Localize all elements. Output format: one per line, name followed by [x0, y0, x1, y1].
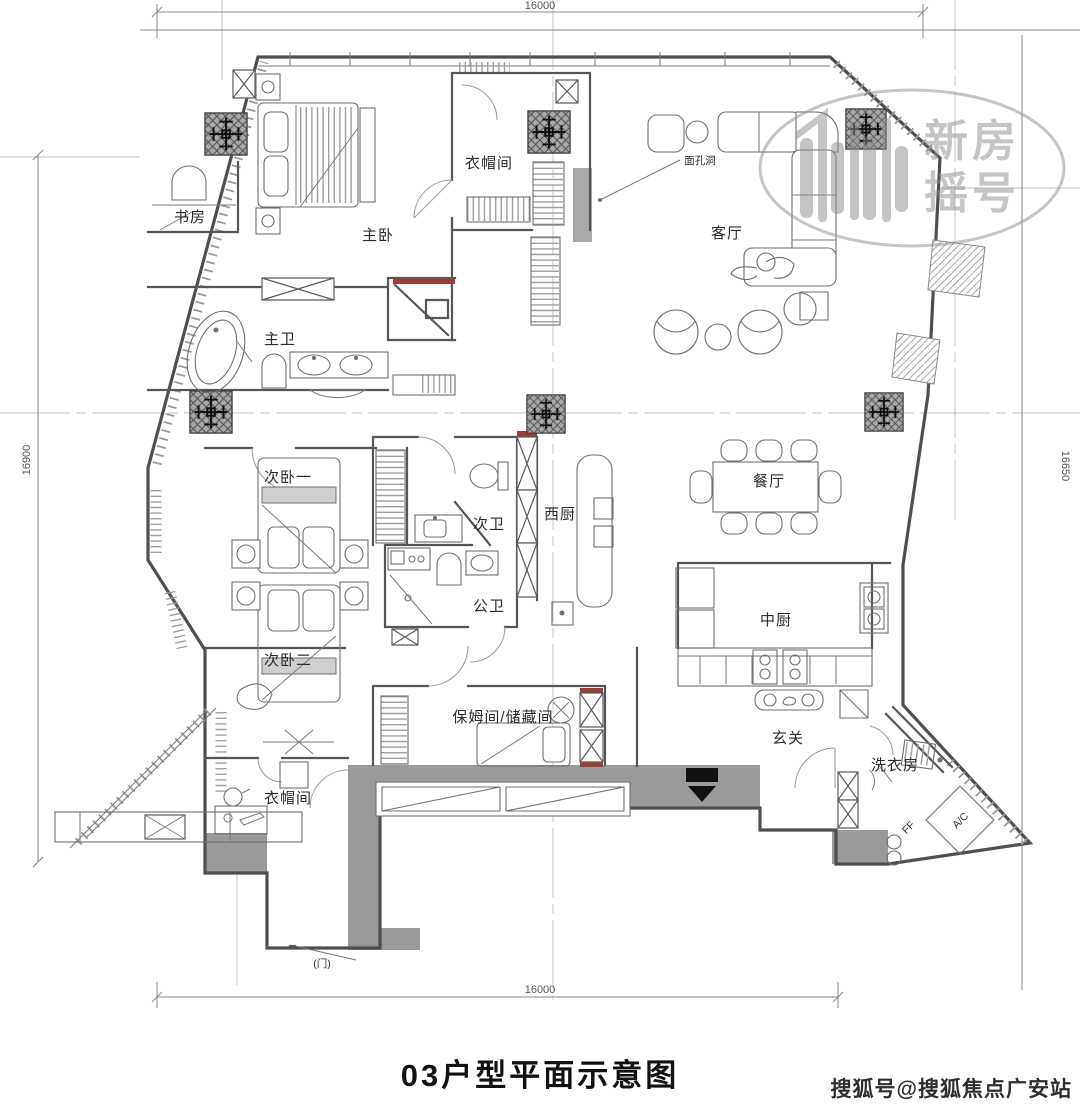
armchairs — [654, 310, 782, 354]
logo-text-line1: 新房 — [924, 117, 1020, 166]
dim-bottom: 16000 — [525, 984, 556, 996]
floorplan-page: 16000 16900 16650 16000 — [0, 0, 1080, 1118]
west-kitchen-counter — [552, 455, 613, 625]
footer-watermark: 搜狐号@搜狐焦点广安站 — [831, 1077, 1072, 1101]
room-label-dining: 餐厅 — [753, 473, 785, 490]
ff-annotation: FF — [900, 819, 918, 837]
room-label-foyer: 玄关 — [772, 730, 804, 747]
room-label-master-closet: 衣帽间 — [465, 155, 513, 172]
room-label-maid-storage: 保姆间/储藏间 — [452, 709, 553, 726]
room-label-laundry: 洗衣房 — [871, 757, 919, 774]
dim-left: 16900 — [21, 445, 33, 476]
plan-title: 03户型平面示意图 — [401, 1058, 679, 1093]
logo-building-icon — [796, 108, 908, 222]
room-label-bath-2: 次卫 — [473, 516, 505, 533]
room-label-entry-closet: 衣帽间 — [264, 790, 312, 807]
elevator-bank — [376, 782, 630, 816]
room-label-study: 书房 — [174, 209, 206, 226]
dim-right: 16650 — [1059, 451, 1071, 482]
room-label-living-room: 客厅 — [711, 225, 743, 242]
room-label-public-bath: 公卫 — [473, 598, 505, 615]
room-label-master-bath: 主卫 — [264, 331, 296, 348]
room-label-bedroom-3: 次卧二 — [264, 652, 312, 669]
ac-annotation: A/C — [950, 810, 971, 831]
room-label-west-kitchen: 西厨 — [544, 506, 576, 523]
room-label-master-bedroom: 主卧 — [362, 227, 394, 244]
floorplan-drawing: 16000 16900 16650 16000 — [0, 0, 1080, 1118]
chinese-kitchen-counters — [676, 568, 888, 718]
logo-text-line2: 摇号 — [924, 169, 1020, 218]
hole-annotation: 面孔洞 — [684, 154, 716, 167]
master-bed — [256, 74, 375, 234]
logo-watermark: 新房 摇号 — [760, 90, 1064, 246]
maid-bed — [477, 697, 574, 766]
dim-top: 16000 — [525, 0, 556, 12]
bed-3 — [232, 582, 368, 709]
door-note: (门) — [313, 957, 331, 970]
room-label-chinese-kitchen: 中厨 — [760, 612, 792, 629]
room-label-bedroom-2: 次卧一 — [264, 469, 312, 486]
